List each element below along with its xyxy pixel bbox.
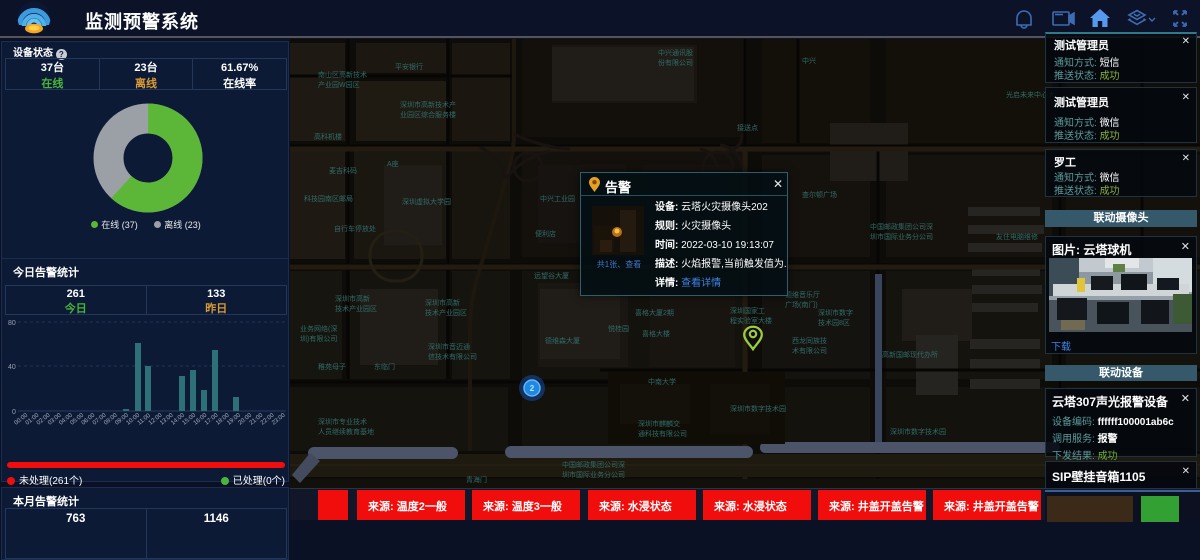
svg-text:圳市国际业务分公司: 圳市国际业务分公司 <box>562 470 625 479</box>
svg-text:深圳国家工: 深圳国家工 <box>730 306 765 315</box>
svg-text:东临门: 东临门 <box>374 362 395 371</box>
svg-text:份有限公司: 份有限公司 <box>658 58 693 67</box>
svg-text:自行车停放处: 自行车停放处 <box>334 224 376 233</box>
svg-text:信技术有限公司: 信技术有限公司 <box>428 352 477 361</box>
svg-text:业务网络(深: 业务网络(深 <box>300 324 337 333</box>
svg-text:喜格大厦2期: 喜格大厦2期 <box>635 308 674 317</box>
svg-text:平安银行: 平安银行 <box>395 62 423 71</box>
svg-text:深圳市麒麟交: 深圳市麒麟交 <box>638 419 680 428</box>
svg-text:产业园W园区: 产业园W园区 <box>318 80 360 89</box>
svg-text:深圳市高新技术产: 深圳市高新技术产 <box>400 100 456 109</box>
svg-text:业园区综合服务楼: 业园区综合服务楼 <box>400 110 456 119</box>
svg-text:2: 2 <box>530 384 535 393</box>
svg-text:悦桂园: 悦桂园 <box>608 324 629 333</box>
svg-text:德维森大厦: 德维森大厦 <box>545 336 580 345</box>
svg-text:程实验室大楼: 程实验室大楼 <box>730 316 772 325</box>
svg-text:深圳市高新: 深圳市高新 <box>425 298 460 307</box>
svg-text:中南大学: 中南大学 <box>648 377 676 386</box>
svg-text:技术园8区: 技术园8区 <box>818 318 850 327</box>
svg-text:麦吉科码: 麦吉科码 <box>329 166 357 175</box>
svg-text:0: 0 <box>12 409 16 416</box>
svg-text:高科机楼: 高科机楼 <box>314 132 342 141</box>
svg-text:德维音乐厅: 德维音乐厅 <box>785 290 820 299</box>
svg-text:术有限公司: 术有限公司 <box>792 346 827 355</box>
svg-text:便利店: 便利店 <box>535 229 556 238</box>
svg-text:西龙同族技: 西龙同族技 <box>792 336 827 345</box>
svg-text:远望谷大厦: 远望谷大厦 <box>534 271 569 280</box>
svg-text:查尔顿广场: 查尔顿广场 <box>802 190 837 199</box>
svg-text:圳)有限公司: 圳)有限公司 <box>300 334 337 343</box>
svg-text:中兴通讯股: 中兴通讯股 <box>658 48 693 57</box>
svg-text:中国邮政集团公司深: 中国邮政集团公司深 <box>870 222 933 231</box>
svg-text:技术产业园区: 技术产业园区 <box>335 304 377 313</box>
svg-text:通科技有限公司: 通科技有限公司 <box>638 429 687 438</box>
svg-text:中兴: 中兴 <box>802 56 816 65</box>
svg-text:深圳虚拟大学园: 深圳虚拟大学园 <box>402 197 451 206</box>
svg-text:高新国邮现代办所: 高新国邮现代办所 <box>882 350 938 359</box>
svg-text:深圳市数字技术园: 深圳市数字技术园 <box>890 427 946 436</box>
svg-text:青海门: 青海门 <box>466 475 487 484</box>
svg-text:圳市国际业务分公司: 圳市国际业务分公司 <box>870 232 933 241</box>
svg-text:人员继续教育基地: 人员继续教育基地 <box>318 427 374 436</box>
svg-text:23:00: 23:00 <box>271 412 287 426</box>
svg-text:深圳市数字: 深圳市数字 <box>818 308 853 317</box>
svg-text:深圳市高新: 深圳市高新 <box>335 294 370 303</box>
svg-text:深圳市数字技术园: 深圳市数字技术园 <box>730 404 786 413</box>
svg-text:南山区高新技术: 南山区高新技术 <box>318 70 367 79</box>
svg-text:广场(南门): 广场(南门) <box>785 300 818 309</box>
svg-text:喜格大楼: 喜格大楼 <box>642 329 670 338</box>
svg-text:80: 80 <box>8 320 16 327</box>
svg-text:深圳市专业技术: 深圳市专业技术 <box>318 417 367 426</box>
svg-text:稚苑母子: 稚苑母子 <box>318 362 346 371</box>
svg-text:40: 40 <box>8 364 16 371</box>
svg-text:深圳市音迈通: 深圳市音迈通 <box>428 342 470 351</box>
svg-text:技术产业园区: 技术产业园区 <box>425 308 467 317</box>
svg-text:接送点: 接送点 <box>737 123 758 132</box>
svg-text:友住电脑维修: 友住电脑维修 <box>996 232 1038 241</box>
svg-text:A座: A座 <box>387 159 399 168</box>
svg-text:中国邮政集团公司深: 中国邮政集团公司深 <box>562 460 625 469</box>
svg-text:中兴工业园: 中兴工业园 <box>540 194 575 203</box>
svg-text:科技园南区邮局: 科技园南区邮局 <box>304 194 353 203</box>
